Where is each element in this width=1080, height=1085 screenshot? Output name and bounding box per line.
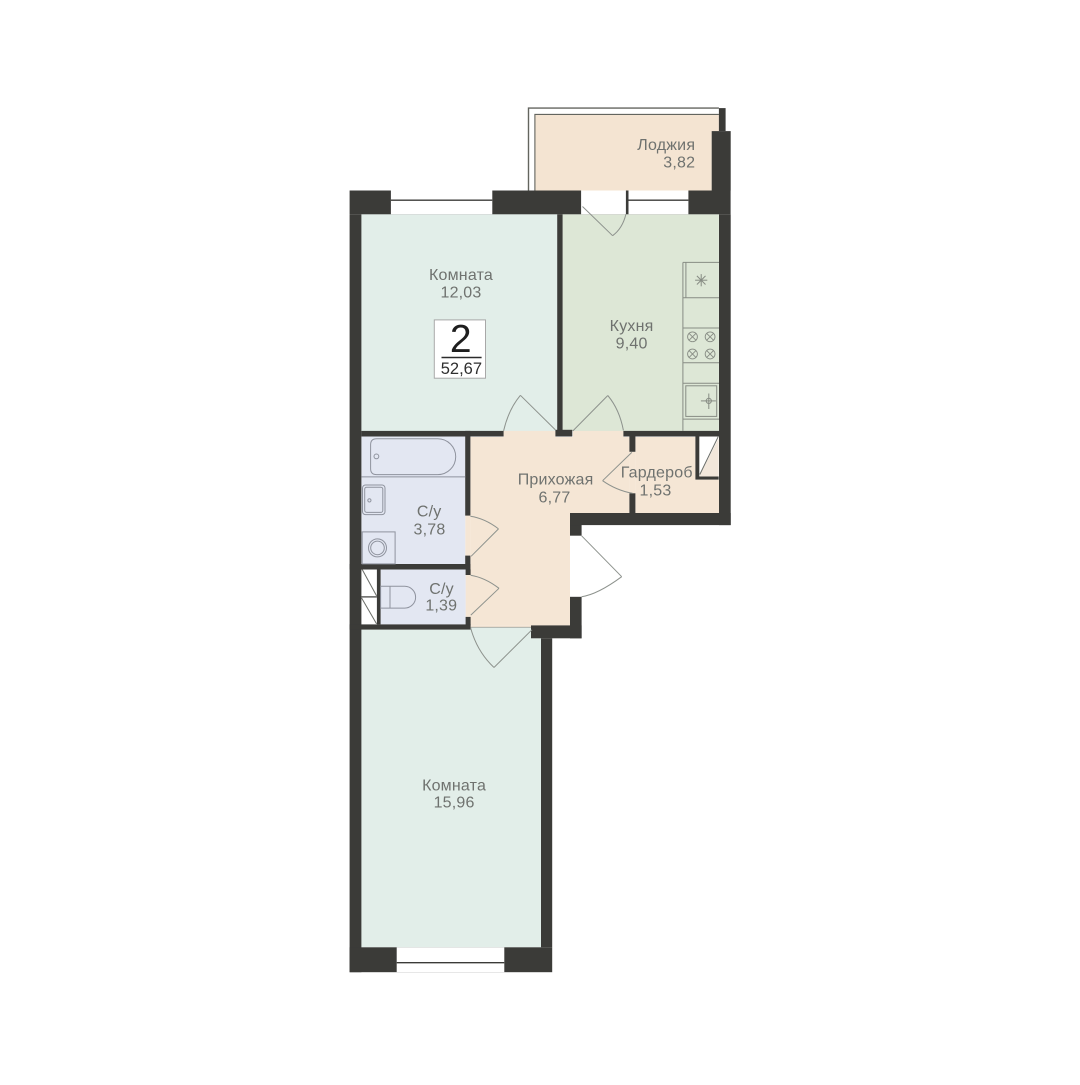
svg-text:3,78: 3,78: [414, 522, 446, 539]
svg-text:Гардероб: Гардероб: [621, 465, 693, 482]
svg-text:12,03: 12,03: [440, 284, 481, 301]
svg-text:1,53: 1,53: [640, 483, 672, 500]
svg-text:52,67: 52,67: [441, 360, 482, 378]
svg-text:9,40: 9,40: [616, 335, 648, 352]
svg-text:С/у: С/у: [429, 581, 454, 598]
svg-text:1,39: 1,39: [425, 598, 457, 615]
svg-text:6,77: 6,77: [539, 489, 571, 506]
svg-text:3,82: 3,82: [663, 155, 695, 172]
svg-text:Лоджия: Лоджия: [637, 137, 695, 154]
svg-text:Прихожая: Прихожая: [518, 472, 594, 489]
svg-text:15,96: 15,96: [434, 794, 475, 811]
svg-text:С/у: С/у: [417, 504, 442, 521]
svg-text:Кухня: Кухня: [610, 318, 654, 335]
svg-text:2: 2: [450, 318, 472, 361]
svg-text:Комната: Комната: [422, 778, 486, 795]
svg-text:Комната: Комната: [429, 267, 493, 284]
